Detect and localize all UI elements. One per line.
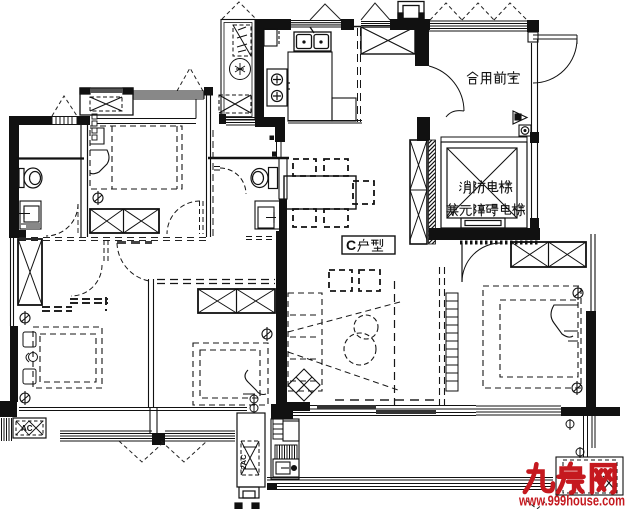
svg-text:www.999house.com: www.999house.com (518, 493, 625, 509)
svg-text:AC: AC (21, 424, 33, 433)
svg-text:C: C (346, 237, 356, 253)
svg-text:2AC: 2AC (239, 454, 248, 470)
